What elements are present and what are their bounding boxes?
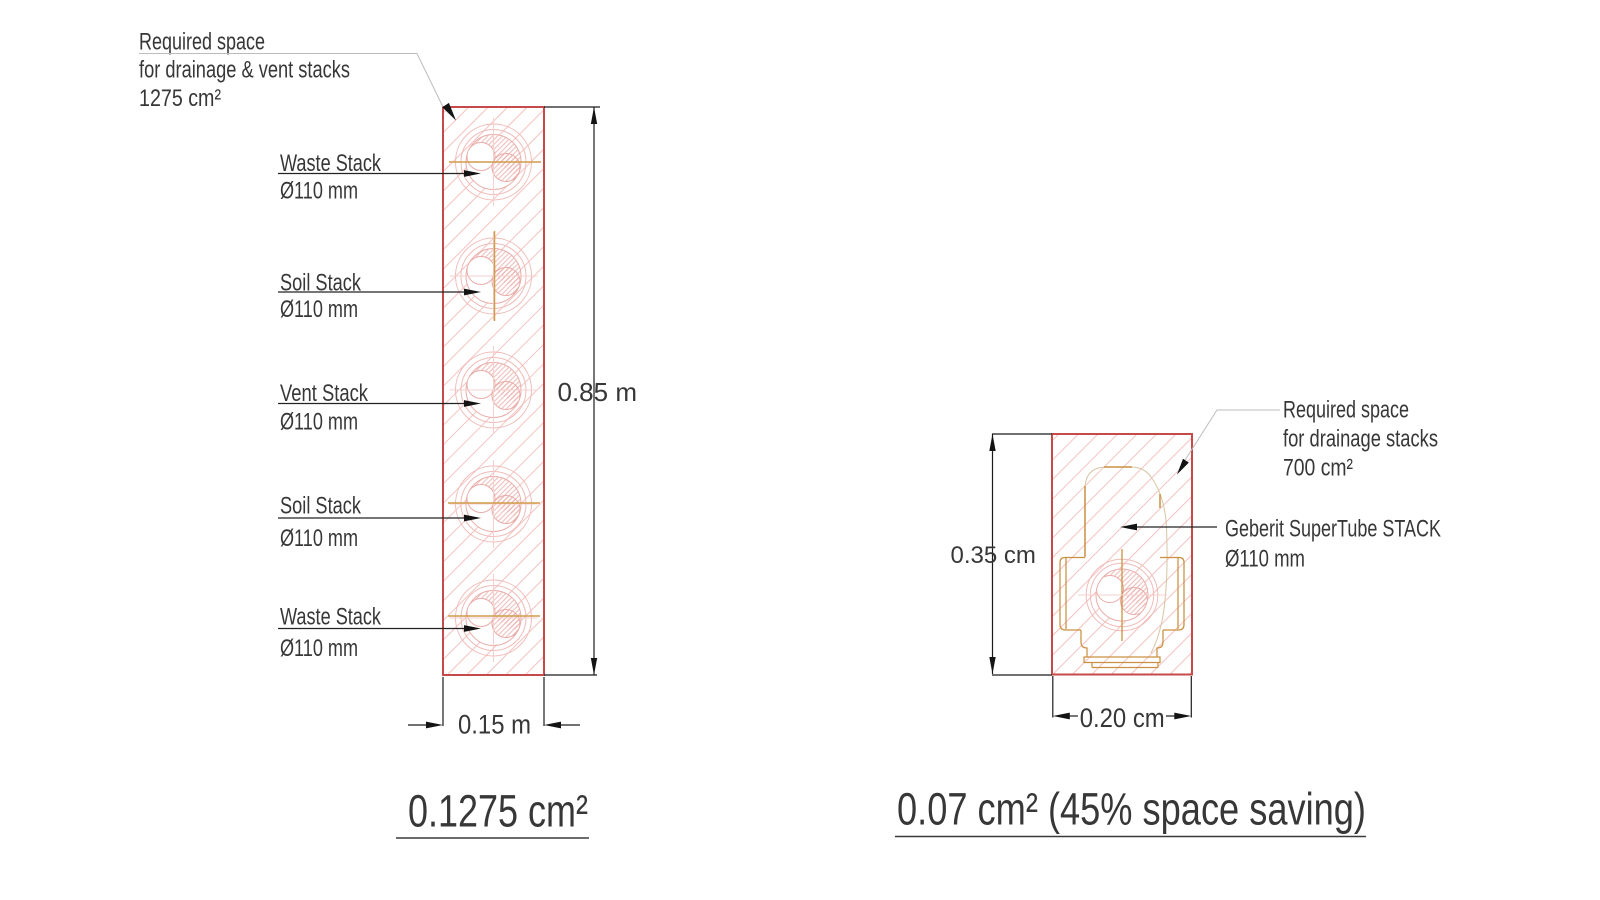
svg-text:Ø110 mm: Ø110 mm — [280, 635, 358, 662]
svg-text:for drainage stacks: for drainage stacks — [1283, 426, 1438, 453]
svg-text:700 cm²: 700 cm² — [1283, 455, 1353, 482]
svg-text:Required space: Required space — [1283, 397, 1409, 424]
svg-text:0.35 cm: 0.35 cm — [951, 542, 1036, 569]
svg-text:0.15 m: 0.15 m — [458, 710, 531, 740]
svg-text:Ø110 mm: Ø110 mm — [280, 178, 358, 205]
svg-text:Required space: Required space — [139, 29, 265, 56]
svg-text:Waste Stack: Waste Stack — [280, 604, 382, 631]
svg-text:for drainage & vent stacks: for drainage & vent stacks — [139, 57, 350, 84]
svg-text:0.1275 cm²: 0.1275 cm² — [408, 786, 588, 837]
svg-text:Ø110 mm: Ø110 mm — [280, 525, 358, 552]
svg-text:Ø110 mm: Ø110 mm — [280, 409, 358, 436]
svg-text:1275 cm²: 1275 cm² — [139, 85, 221, 112]
svg-text:0.20 cm: 0.20 cm — [1080, 703, 1165, 733]
svg-text:Ø110 mm: Ø110 mm — [1225, 546, 1305, 573]
svg-text:Geberit SuperTube STACK: Geberit SuperTube STACK — [1225, 516, 1441, 543]
svg-text:Ø110 mm: Ø110 mm — [280, 296, 358, 323]
svg-text:Soil Stack: Soil Stack — [280, 493, 362, 520]
svg-text:0.85 m: 0.85 m — [558, 377, 638, 407]
svg-text:0.07 cm² (45% space saving): 0.07 cm² (45% space saving) — [897, 784, 1366, 835]
